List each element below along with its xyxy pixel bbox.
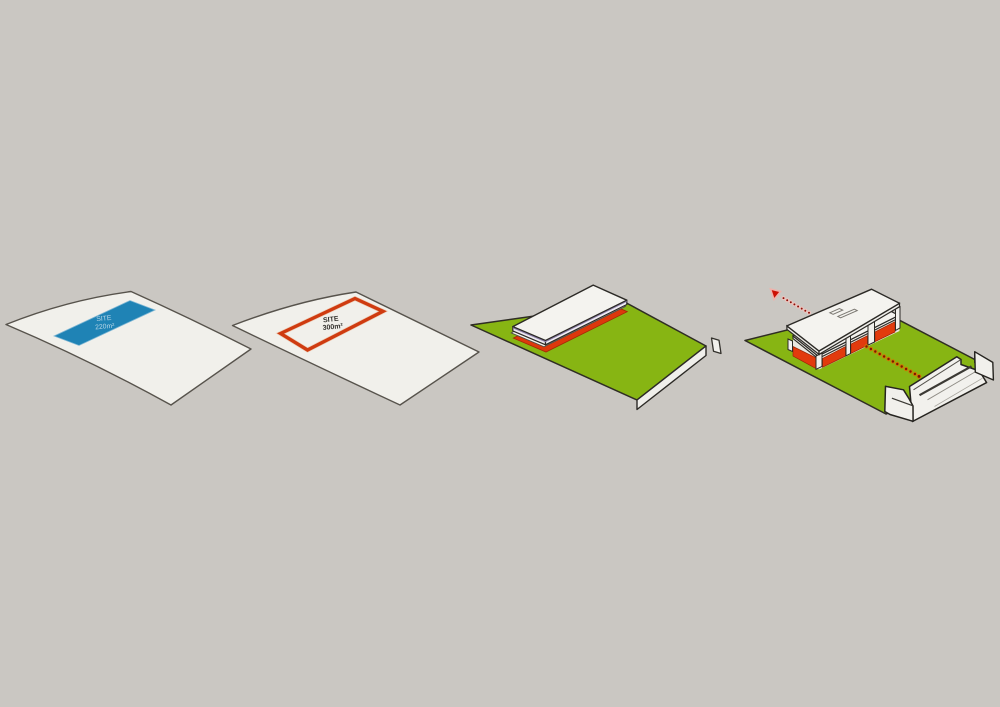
svg-text:SITE: SITE bbox=[96, 315, 112, 323]
